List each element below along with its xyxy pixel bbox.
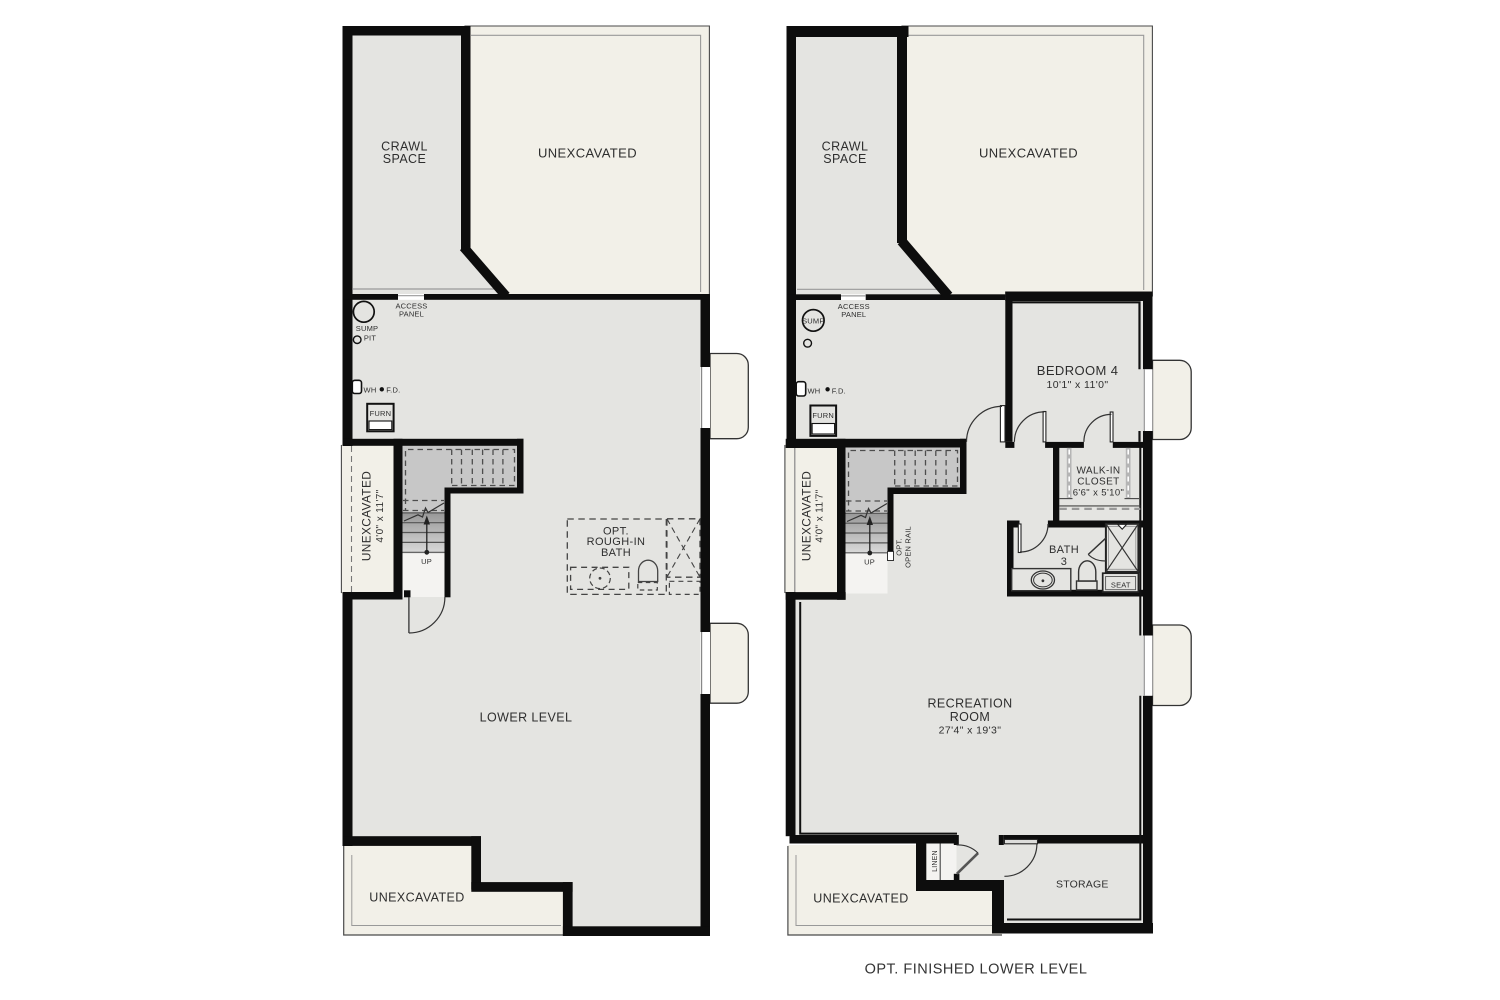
svg-text:UP: UP: [421, 557, 432, 566]
svg-text:OPT.: OPT.: [895, 538, 904, 555]
svg-text:WH: WH: [807, 386, 820, 395]
svg-text:SUMP: SUMP: [802, 316, 824, 325]
svg-text:STORAGE: STORAGE: [1056, 879, 1109, 891]
svg-text:BATH: BATH: [1049, 544, 1079, 556]
svg-text:F.D.: F.D.: [832, 386, 846, 395]
svg-text:UNEXCAVATED: UNEXCAVATED: [979, 146, 1078, 161]
svg-text:3: 3: [1061, 556, 1068, 568]
svg-text:6'6" x 5'10": 6'6" x 5'10": [1073, 488, 1125, 499]
svg-text:PANEL: PANEL: [841, 310, 866, 319]
svg-text:LOWER LEVEL: LOWER LEVEL: [480, 711, 573, 725]
svg-text:SPACE: SPACE: [823, 152, 866, 166]
svg-text:OPEN RAIL: OPEN RAIL: [904, 526, 913, 568]
svg-text:10'1" x 11'0": 10'1" x 11'0": [1046, 379, 1108, 391]
svg-text:27'4" x 19'3": 27'4" x 19'3": [939, 725, 1002, 737]
svg-text:UP: UP: [864, 558, 875, 567]
svg-text:UNEXCAVATED: UNEXCAVATED: [813, 892, 908, 906]
svg-text:BEDROOM 4: BEDROOM 4: [1037, 363, 1119, 378]
svg-text:F.D.: F.D.: [386, 385, 400, 394]
svg-text:PANEL: PANEL: [399, 310, 424, 319]
svg-text:WH: WH: [364, 385, 377, 394]
svg-text:CLOSET: CLOSET: [1077, 477, 1119, 488]
svg-text:FURN: FURN: [370, 409, 392, 418]
svg-text:LINEN: LINEN: [932, 850, 939, 872]
svg-text:PIT: PIT: [364, 333, 376, 342]
svg-text:4'0" x 11'7": 4'0" x 11'7": [375, 489, 386, 542]
svg-text:UNEXCAVATED: UNEXCAVATED: [360, 471, 374, 561]
svg-text:SEAT: SEAT: [1111, 580, 1131, 589]
svg-text:4'0" x 11'7": 4'0" x 11'7": [815, 489, 826, 542]
svg-text:RECREATION: RECREATION: [927, 697, 1012, 711]
svg-text:UNEXCAVATED: UNEXCAVATED: [799, 471, 813, 561]
svg-text:UNEXCAVATED: UNEXCAVATED: [369, 891, 464, 905]
svg-text:SUMP: SUMP: [356, 324, 378, 333]
svg-text:FURN: FURN: [812, 411, 834, 420]
svg-text:UNEXCAVATED: UNEXCAVATED: [538, 146, 637, 161]
svg-text:WALK-IN: WALK-IN: [1076, 466, 1120, 477]
svg-text:SPACE: SPACE: [383, 152, 426, 166]
svg-text:BATH: BATH: [601, 547, 631, 559]
svg-text:OPT. FINISHED LOWER LEVEL: OPT. FINISHED LOWER LEVEL: [865, 962, 1088, 978]
svg-text:ROOM: ROOM: [950, 710, 991, 724]
